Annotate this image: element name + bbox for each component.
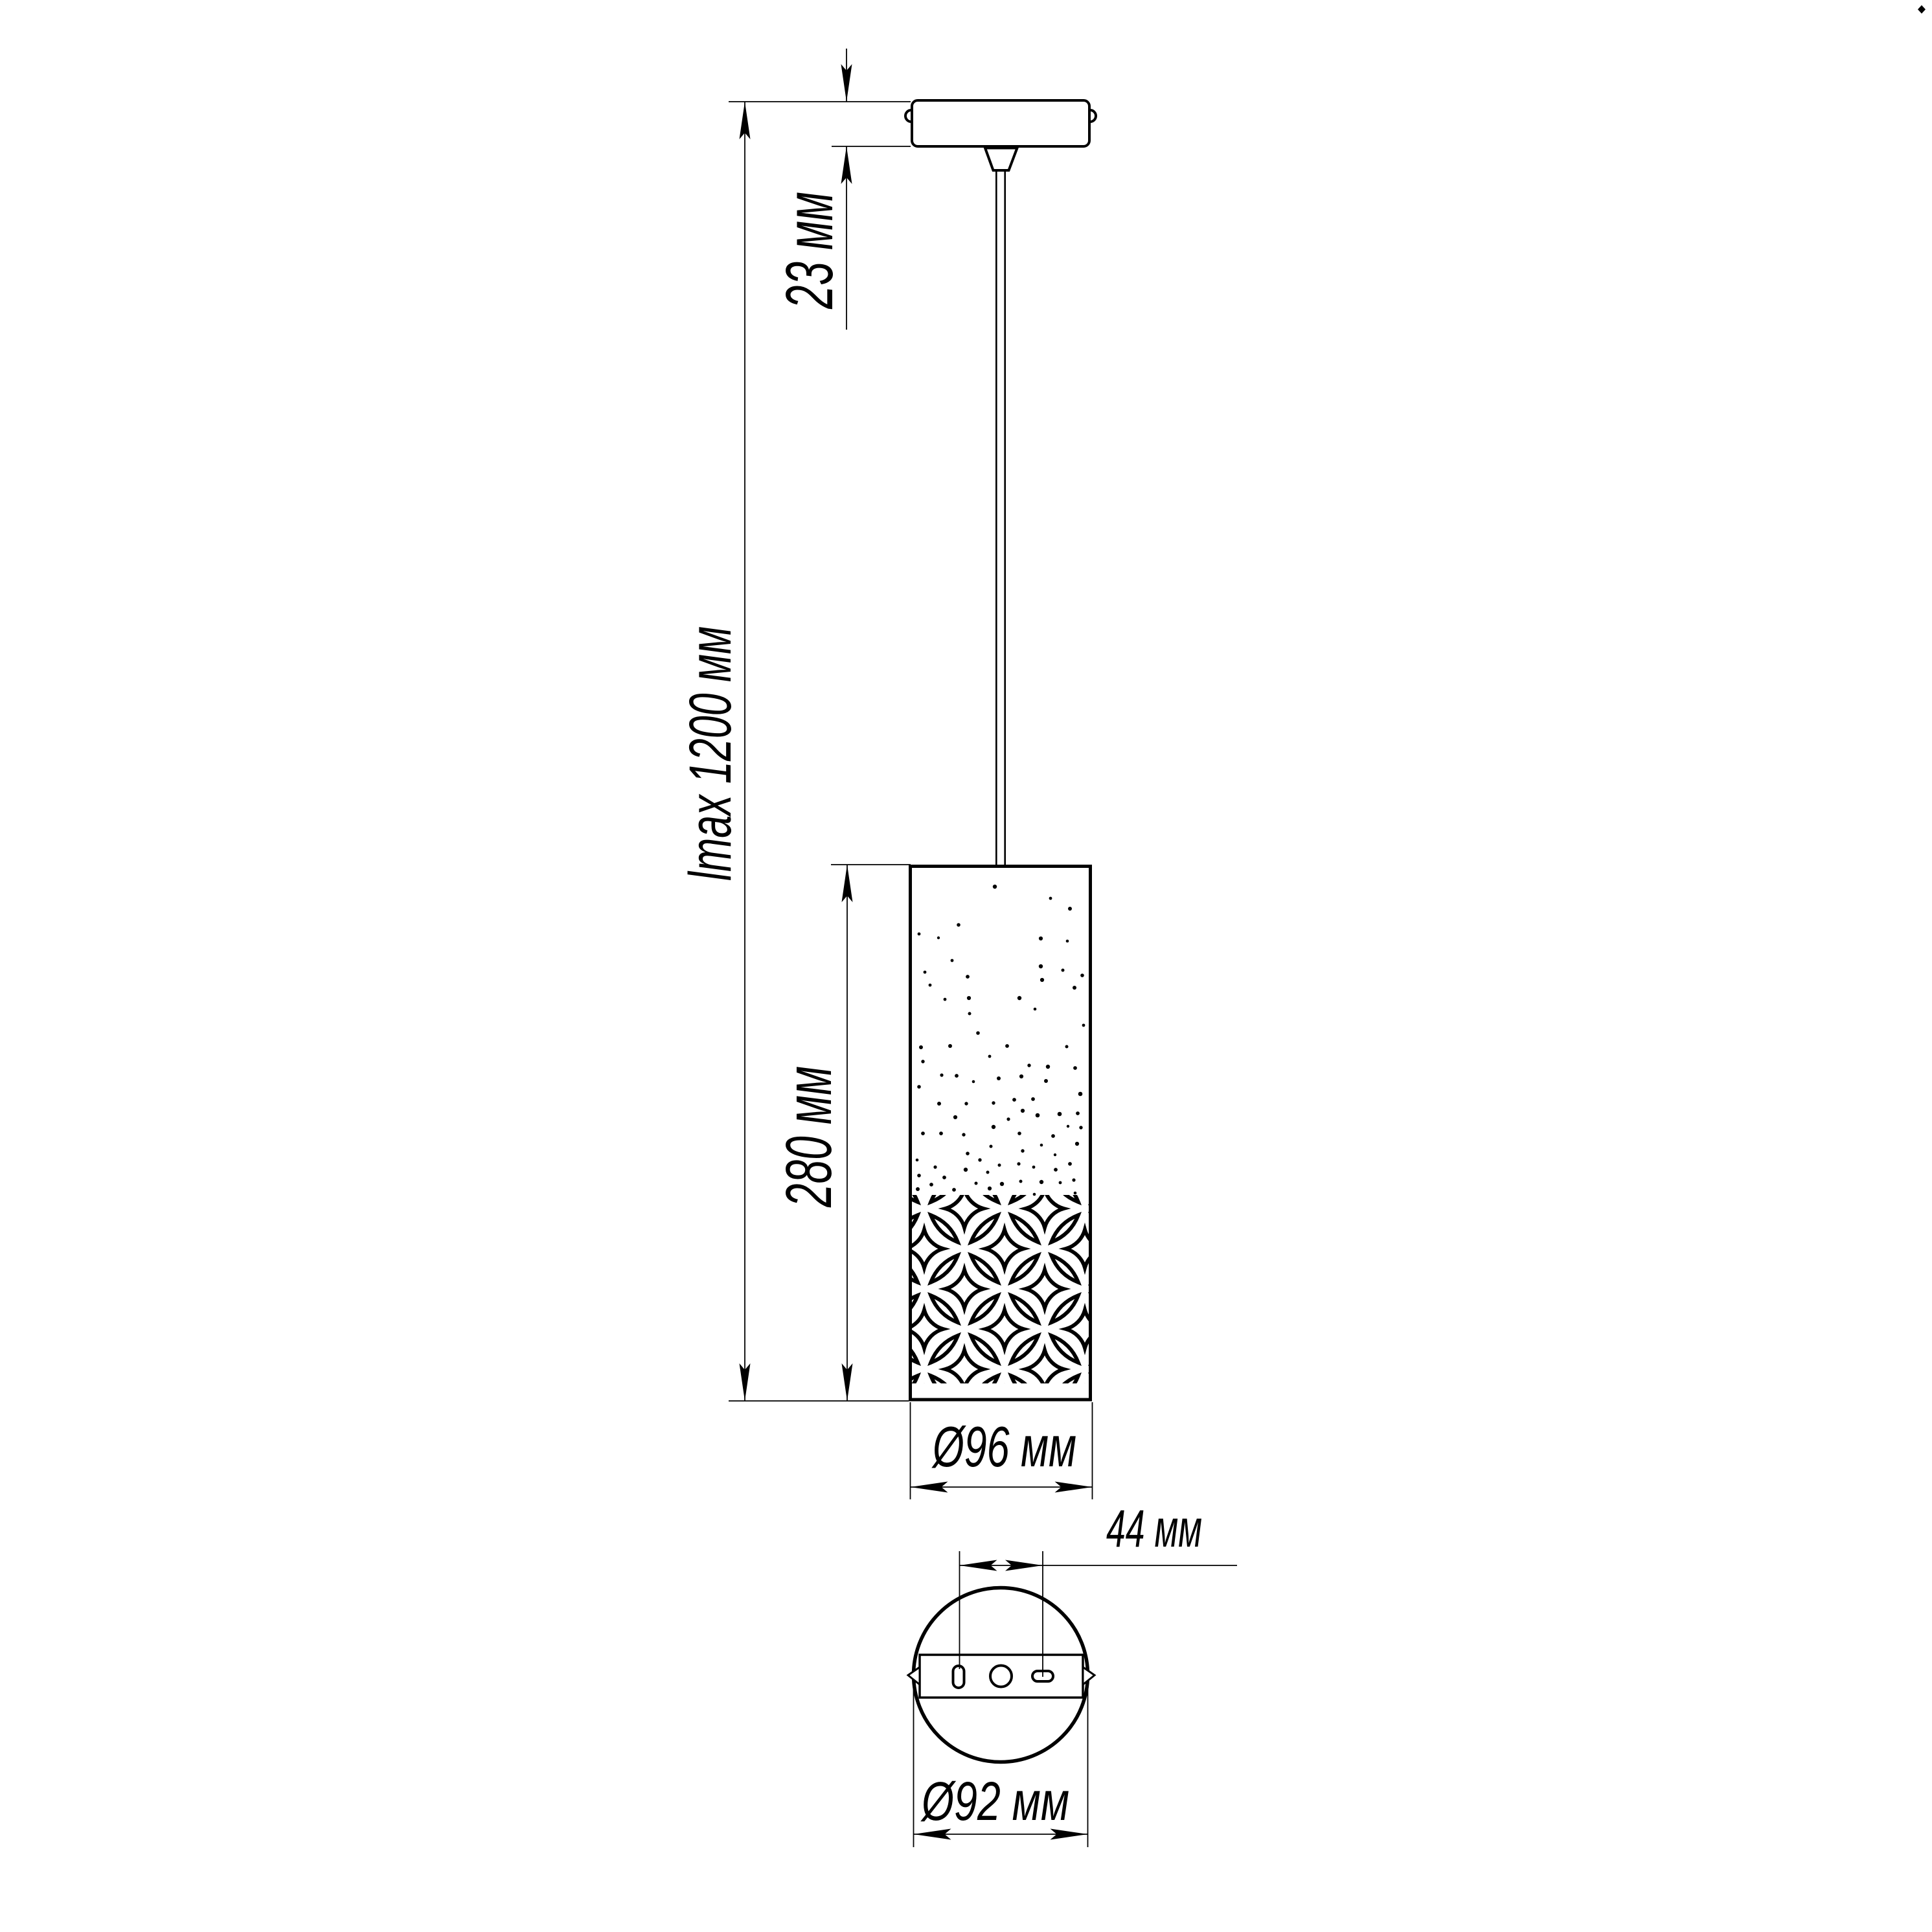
svg-text:Ø92 мм: Ø92 мм: [920, 1771, 1069, 1832]
svg-text:280 мм: 280 мм: [773, 1066, 845, 1208]
svg-text:lmax 1200 мм: lmax 1200 мм: [677, 626, 744, 881]
svg-text:23 мм: 23 мм: [772, 192, 847, 310]
svg-text:Ø96 мм: Ø96 мм: [931, 1415, 1076, 1479]
svg-text:44 мм: 44 мм: [1106, 1499, 1202, 1558]
